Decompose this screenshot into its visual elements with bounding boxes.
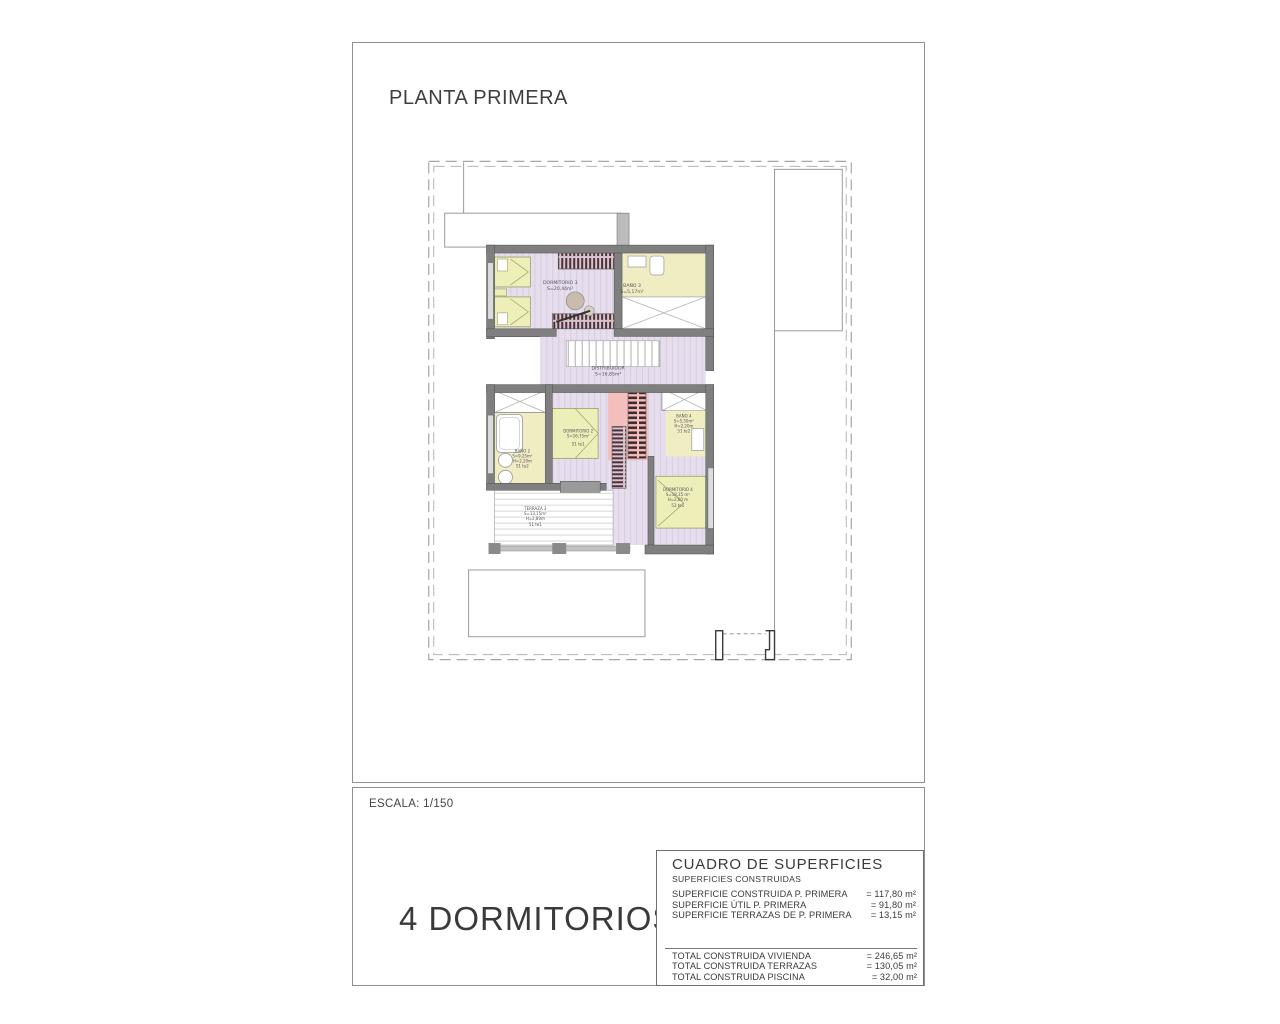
neighbor-volume [775,169,843,330]
svg-text:S=16,75m²: S=16,75m² [567,433,590,438]
svg-text:51 te1: 51 te1 [572,441,585,446]
total-row: TOTAL CONSTRUIDA VIVIENDA = 246,65 m² [672,951,917,961]
chimney [617,213,629,247]
svg-text:H=2,60 m: H=2,60 m [668,497,688,502]
total-row: TOTAL CONSTRUIDA PISCINA = 32,00 m² [672,972,917,982]
svg-text:51 te2: 51 te2 [677,428,690,433]
svg-text:51 te2: 51 te2 [516,463,529,468]
surface-row: SUPERFICIE CONSTRUIDA P. PRIMERA = 117,8… [672,889,916,900]
lower-block: BAÑO 2 S=9,25m² H=2,20m 51 te2 DORMITORI… [487,385,714,554]
upper-block: DORMITORIO 3 S=20,44m² BAÑO 3 S=5,17m² [487,245,714,339]
distribuidor: DISTRIBUIDOR S=16,85m² [540,337,713,385]
svg-text:52 te1: 52 te1 [671,503,684,508]
scale-label: ESCALA: 1/150 [369,798,453,810]
svg-text:S=16,85m²: S=16,85m² [595,372,621,378]
bed-dormitorio-3b [495,297,531,327]
floor-plan-svg: DORMITORIO 3 S=20,44m² BAÑO 3 S=5,17m² D… [353,43,924,782]
lower-terrace-outline [469,570,645,637]
surface-row: SUPERFICIE ÚTIL P. PRIMERA = 91,80 m² [672,900,916,911]
surfaces-table: CUADRO DE SUPERFICIES SUPERFICIES CONSTR… [656,850,924,986]
surface-row: SUPERFICIE TERRAZAS DE P. PRIMERA = 13,1… [672,910,916,921]
bidet [498,470,512,484]
drawing-frame: PLANTA PRIMERA [352,42,925,783]
plan-sheet: PLANTA PRIMERA [0,0,1280,1024]
window [708,468,713,528]
window [488,415,493,473]
stair-landing [566,341,660,367]
surfaces-table-title: CUADRO DE SUPERFICIES [672,856,883,873]
svg-text:51 te1: 51 te1 [529,522,542,527]
room-label: BAÑO 3 [623,282,641,289]
window [488,263,493,319]
svg-text:S=20,44m²: S=20,44m² [547,286,573,292]
entrance-gate [716,631,775,660]
toilet [498,453,512,467]
svg-text:H=2,80m: H=2,80m [526,516,545,521]
room-label: DORMITORIO 3 [543,280,578,286]
nightstand [495,289,507,296]
terraza-floor [495,490,614,545]
bathtub [496,414,522,452]
total-row: TOTAL CONSTRUIDA TERRAZAS = 130,05 m² [672,961,917,971]
wardrobe-bottom [552,314,614,329]
surfaces-totals: TOTAL CONSTRUIDA VIVIENDA = 246,65 m² TO… [665,948,917,982]
svg-text:S=5,17m²: S=5,17m² [620,289,643,295]
stair-flight [628,391,646,459]
wardrobe-top [558,253,614,269]
room-label: DISTRIBUIDOR [591,366,625,372]
wardrobe-x-left [495,391,546,413]
surfaces-table-subtitle: SUPERFICIES CONSTRUIDAS [672,874,801,884]
wardrobe-corridor [612,426,626,488]
round-table [566,292,584,310]
bedrooms-label: 4 DORMITORIOS [399,900,675,938]
surfaces-rows: SUPERFICIE CONSTRUIDA P. PRIMERA = 117,8… [672,889,916,921]
bed-dormitorio-3a [495,257,531,287]
title-block-panel: ESCALA: 1/150 4 DORMITORIOS CUADRO DE SU… [352,787,925,986]
